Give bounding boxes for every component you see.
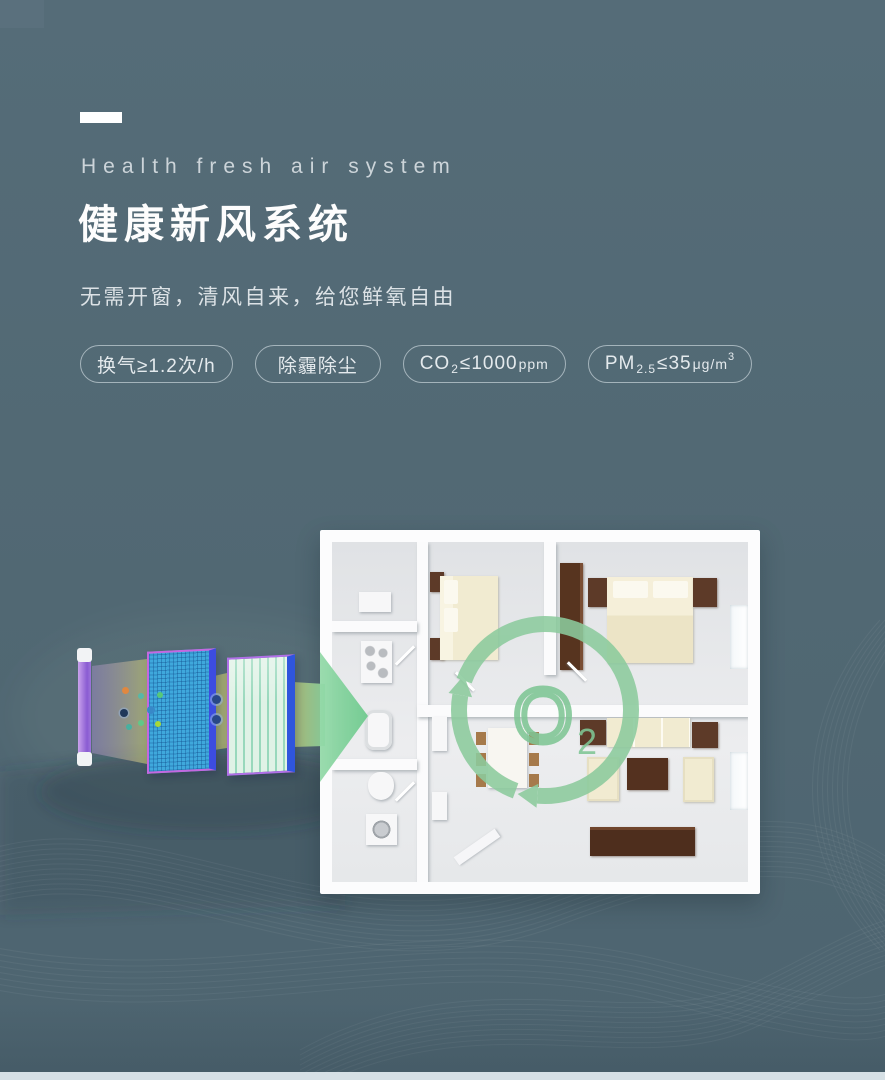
armchair bbox=[683, 757, 714, 802]
storage-box bbox=[359, 592, 391, 612]
side-table bbox=[692, 722, 718, 748]
stove bbox=[361, 641, 392, 683]
spec-badges: 换气≥1.2次/h 除霾除尘 CO2≤1000ppm PM2.5≤35μg/m3 bbox=[80, 345, 752, 383]
particle-dot bbox=[212, 695, 221, 704]
badge-superscript: 3 bbox=[728, 351, 735, 363]
badge-unit: ppm bbox=[519, 356, 549, 372]
badge-unit: μg/m bbox=[693, 356, 728, 372]
badge-haze-dust: 除霾除尘 bbox=[255, 345, 381, 383]
door-swing bbox=[395, 781, 416, 802]
armchair bbox=[587, 757, 619, 801]
chair bbox=[529, 753, 539, 766]
floor-plan bbox=[320, 530, 760, 894]
tv-cabinet bbox=[590, 827, 695, 856]
pleated-filter-icon bbox=[227, 654, 295, 776]
pillow bbox=[444, 608, 458, 632]
badge-text: ≤35 bbox=[657, 353, 692, 375]
badge-subscript: 2.5 bbox=[636, 362, 656, 376]
particle-dot bbox=[122, 687, 129, 694]
chair bbox=[476, 753, 486, 766]
page-subtitle: 无需开窗，清风自来，给您鲜氧自由 bbox=[80, 281, 456, 311]
washing-machine bbox=[366, 814, 397, 845]
dining-table bbox=[488, 728, 527, 788]
entry-door-swing bbox=[454, 829, 501, 866]
badge-air-exchange: 换气≥1.2次/h bbox=[80, 345, 233, 383]
particle-dot bbox=[147, 706, 155, 714]
particle-dot bbox=[138, 720, 144, 726]
badge-text: CO bbox=[420, 353, 451, 375]
badge-text: 换气≥1.2次/h bbox=[97, 351, 216, 378]
badge-co2: CO2≤1000ppm bbox=[403, 345, 566, 383]
door-swing bbox=[395, 645, 416, 666]
uv-lamp-icon bbox=[78, 651, 91, 763]
sofa bbox=[607, 718, 690, 747]
particle-dot bbox=[138, 693, 144, 699]
corner-patch bbox=[0, 0, 44, 28]
particle-dot bbox=[120, 709, 128, 717]
toilet bbox=[368, 772, 394, 800]
particle-dot bbox=[212, 715, 221, 724]
chair bbox=[476, 774, 486, 787]
particle-dot bbox=[126, 724, 132, 730]
pillow bbox=[444, 580, 458, 604]
pillow bbox=[613, 581, 648, 598]
wardrobe bbox=[560, 563, 583, 670]
nightstand bbox=[693, 578, 717, 607]
pillow bbox=[653, 581, 688, 598]
cabinet bbox=[432, 792, 447, 820]
badge-pm25: PM2.5≤35μg/m3 bbox=[588, 345, 752, 383]
coffee-table bbox=[627, 758, 668, 790]
side-table bbox=[580, 720, 606, 745]
bottom-strip bbox=[0, 1072, 885, 1080]
badge-text: 除霾除尘 bbox=[278, 351, 358, 378]
page-title: 健康新风系统 bbox=[78, 192, 354, 250]
mesh-filter-icon bbox=[147, 648, 216, 774]
eyebrow-text: Health fresh air system bbox=[81, 155, 457, 179]
chair bbox=[476, 732, 486, 745]
bottom-shade bbox=[0, 1002, 885, 1072]
badge-text: ≤1000 bbox=[460, 353, 518, 375]
particle-dot bbox=[157, 692, 163, 698]
chair bbox=[529, 774, 539, 787]
badge-text: PM bbox=[605, 353, 636, 375]
cabinet bbox=[432, 717, 447, 751]
door-swing bbox=[455, 671, 476, 692]
badge-subscript: 2 bbox=[451, 362, 459, 376]
particle-dot bbox=[155, 721, 161, 727]
title-dash bbox=[80, 112, 122, 123]
chair bbox=[529, 732, 539, 745]
nightstand bbox=[588, 578, 607, 607]
wall bbox=[544, 542, 556, 675]
wall bbox=[332, 621, 417, 632]
window bbox=[730, 752, 748, 810]
window bbox=[730, 605, 748, 669]
wall bbox=[332, 759, 417, 770]
wall bbox=[417, 705, 748, 717]
bathtub bbox=[365, 710, 392, 750]
floor-plan-interior bbox=[332, 542, 748, 882]
